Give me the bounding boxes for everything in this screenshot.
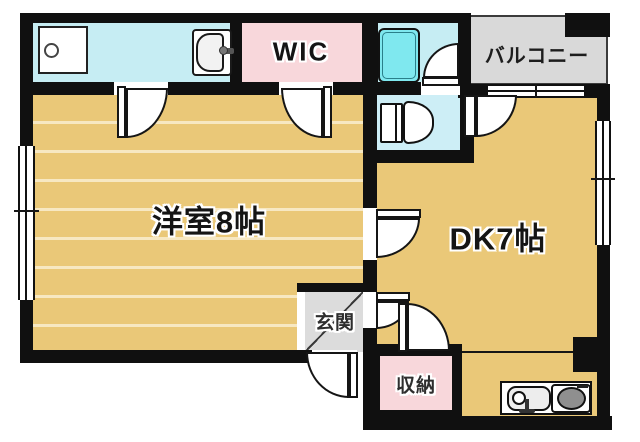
washbasin-faucet-knob-icon — [219, 46, 228, 55]
wall-entrance-top — [297, 283, 363, 292]
window-left-icon — [18, 146, 35, 300]
door-leaf — [323, 86, 332, 138]
wall-west-room-bottom — [20, 350, 312, 363]
dk-label: DK7帖 — [449, 214, 546, 259]
door-gap — [363, 292, 377, 328]
door-leaf — [422, 77, 460, 86]
wall-balcony-pillar — [565, 13, 610, 37]
toilet-icon — [380, 103, 403, 143]
kitchen-sink-drain-icon — [512, 391, 526, 405]
door-leaf — [464, 95, 476, 137]
stove-grill-icon — [577, 385, 588, 388]
wall-toilet-bottom — [363, 150, 474, 163]
door-leaf — [398, 303, 407, 352]
door-leaf — [376, 292, 410, 301]
storage-label: 収納 — [396, 371, 436, 398]
wall-right-pillar — [573, 337, 597, 372]
wall-washroom-bottom — [20, 82, 471, 95]
balcony-label: バルコニー — [485, 40, 590, 69]
door-leaf — [349, 352, 358, 398]
door-swing-icon — [306, 352, 349, 398]
entrance-threshold — [297, 292, 305, 352]
wic-label: WIC — [273, 37, 330, 68]
wall-wic-bath-divider — [362, 13, 378, 82]
kitchen-faucet-base-icon — [519, 409, 535, 413]
door-leaf — [376, 209, 421, 218]
toilet-tank-line-icon — [395, 105, 397, 141]
window-right-icon — [595, 121, 611, 245]
wall-balcony-bottom-right — [584, 84, 610, 98]
stove-burner-icon — [557, 387, 586, 410]
door-leaf — [117, 86, 126, 138]
washing-machine-drain-icon — [44, 43, 59, 58]
wall-bottom — [363, 416, 612, 430]
western-room-label: 洋室8帖 — [152, 197, 266, 242]
floor-plan: 洋室8帖 DK7帖 WIC バルコニー 玄関 収納 — [0, 0, 640, 442]
kitchen-divider-line — [462, 351, 574, 353]
window-left-tick — [14, 210, 39, 212]
door-gap — [363, 208, 377, 260]
window-balcony-tick — [535, 84, 537, 98]
bathtub-inner-icon — [382, 32, 416, 79]
window-right-tick — [591, 178, 615, 180]
entrance-label: 玄関 — [315, 308, 355, 335]
wall-top — [20, 13, 471, 23]
